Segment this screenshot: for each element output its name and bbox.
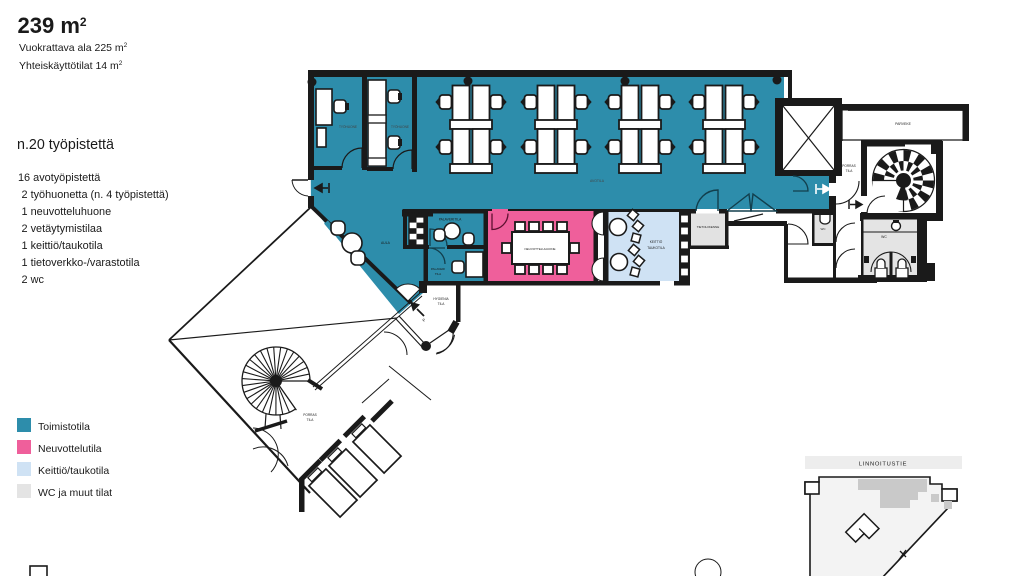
svg-text:WC ja muut tilat: WC ja muut tilat xyxy=(38,487,112,499)
svg-text:Neuvottelutila: Neuvottelutila xyxy=(38,443,102,455)
svg-text:TIETOLIIKENNE: TIETOLIIKENNE xyxy=(697,225,719,229)
svg-text:TAUKOTILA: TAUKOTILA xyxy=(647,246,665,250)
svg-text:PALAVERITILA: PALAVERITILA xyxy=(439,218,462,222)
svg-text:1 keittiö/taukotila: 1 keittiö/taukotila xyxy=(22,240,104,252)
svg-text:PALAVERI: PALAVERI xyxy=(431,267,445,271)
svg-text:1 tietoverkko-/varastotila: 1 tietoverkko-/varastotila xyxy=(22,257,141,269)
svg-text:TILA: TILA xyxy=(435,272,441,276)
svg-text:TYÖHUONE: TYÖHUONE xyxy=(391,125,409,129)
svg-text:WC: WC xyxy=(881,235,887,239)
svg-text:2 wc: 2 wc xyxy=(22,274,45,286)
svg-text:239 m2: 239 m2 xyxy=(18,13,87,38)
svg-text:Vuokrattava ala 225 m2: Vuokrattava ala 225 m2 xyxy=(19,42,128,54)
svg-text:WC: WC xyxy=(821,227,827,231)
svg-text:1 neuvotteluhuone: 1 neuvotteluhuone xyxy=(22,206,112,218)
svg-text:Keittiö/taukotila: Keittiö/taukotila xyxy=(38,465,109,477)
svg-text:Yhteiskäyttötilat 14 m2: Yhteiskäyttötilat 14 m2 xyxy=(19,60,123,72)
svg-text:AVOTILA: AVOTILA xyxy=(590,179,605,183)
svg-text:NEUVOTTELUHUONE: NEUVOTTELUHUONE xyxy=(524,247,555,251)
svg-text:PORRAS: PORRAS xyxy=(303,413,316,417)
svg-text:HYGIENIA: HYGIENIA xyxy=(433,297,449,301)
svg-text:KEITTIÖ: KEITTIÖ xyxy=(650,240,663,244)
svg-text:16 avotyöpistettä: 16 avotyöpistettä xyxy=(18,172,101,184)
svg-text:PARVEKE: PARVEKE xyxy=(895,122,911,126)
svg-text:TILA: TILA xyxy=(438,302,446,306)
svg-text:AULA: AULA xyxy=(381,241,391,245)
svg-text:TILA: TILA xyxy=(307,418,315,422)
svg-text:TYÖHUONE: TYÖHUONE xyxy=(339,125,357,129)
svg-text:TILA: TILA xyxy=(846,169,854,173)
svg-text:P: P xyxy=(421,317,427,323)
svg-text:Toimistotila: Toimistotila xyxy=(38,421,90,433)
svg-text:PORRAS: PORRAS xyxy=(842,164,855,168)
svg-text:LINNOITUSTIE: LINNOITUSTIE xyxy=(859,462,907,468)
svg-text:2 työhuonetta (n. 4 työpistett: 2 työhuonetta (n. 4 työpistettä) xyxy=(22,189,169,201)
svg-text:2 vetäytymistilaa: 2 vetäytymistilaa xyxy=(22,223,103,235)
svg-text:n.20 työpistettä: n.20 työpistettä xyxy=(17,137,114,153)
